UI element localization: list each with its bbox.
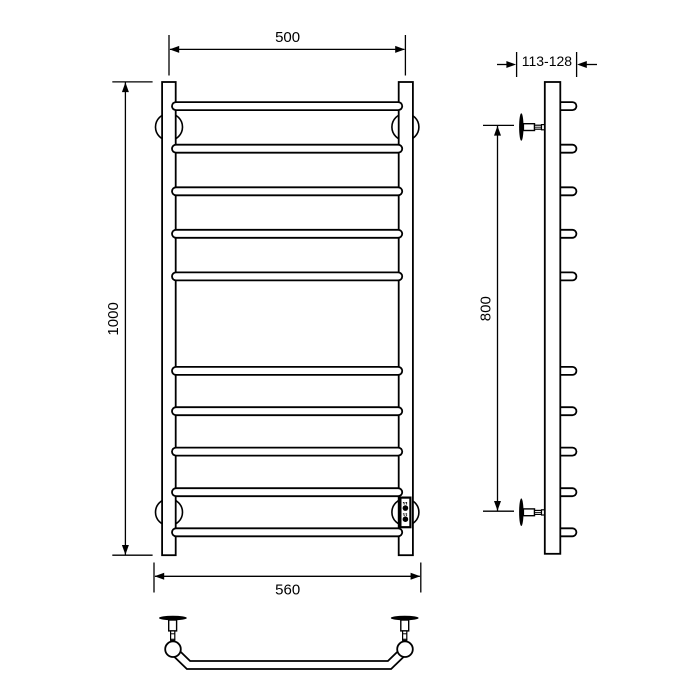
svg-text:560: 560 <box>275 582 300 599</box>
svg-text:800: 800 <box>477 296 494 321</box>
svg-text:500: 500 <box>275 29 300 46</box>
svg-text:113-128: 113-128 <box>522 53 573 69</box>
svg-text:1000: 1000 <box>105 302 122 335</box>
